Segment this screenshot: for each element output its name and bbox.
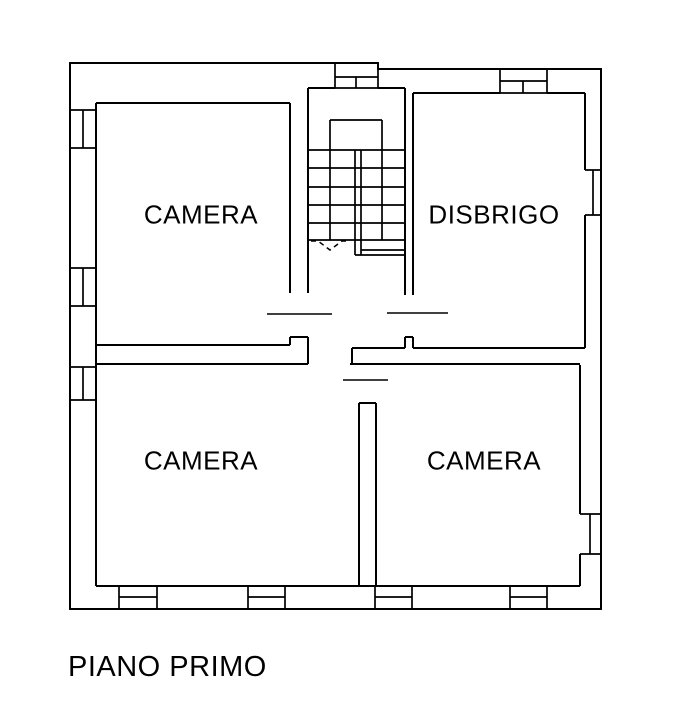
window-symbol <box>375 586 412 609</box>
stair-flight-edges <box>330 150 382 240</box>
window-symbol <box>580 514 601 554</box>
inner-walls <box>96 88 585 586</box>
room-label-disbrigo: DISBRIGO <box>428 200 559 231</box>
window-symbol <box>500 69 547 93</box>
window-symbol <box>585 170 601 215</box>
room-label-camera-bottom-left: CAMERA <box>144 446 258 477</box>
window-symbol <box>70 367 96 400</box>
staircase <box>308 120 405 255</box>
plan-title: PIANO PRIMO <box>68 651 267 684</box>
floor-plan: CAMERA DISBRIGO CAMERA CAMERA PIANO PRIM… <box>0 0 688 713</box>
stair-direction-arrow-icon <box>311 241 349 250</box>
stair-lower-landing <box>355 250 405 255</box>
window-symbol <box>119 586 157 609</box>
stair-landing <box>330 120 382 150</box>
window-symbol <box>248 586 285 609</box>
stair-treads <box>308 150 405 240</box>
room-label-camera-top-left: CAMERA <box>144 200 258 231</box>
room-label-camera-bottom-right: CAMERA <box>427 446 541 477</box>
window-symbol <box>335 63 378 88</box>
outer-wall-outline <box>70 63 601 609</box>
windows <box>70 63 601 609</box>
floor-plan-drawing <box>0 0 688 713</box>
doors <box>267 313 448 380</box>
window-symbol <box>70 110 96 148</box>
window-symbol <box>70 268 96 306</box>
window-symbol <box>510 586 547 609</box>
outer-walls <box>70 63 601 609</box>
